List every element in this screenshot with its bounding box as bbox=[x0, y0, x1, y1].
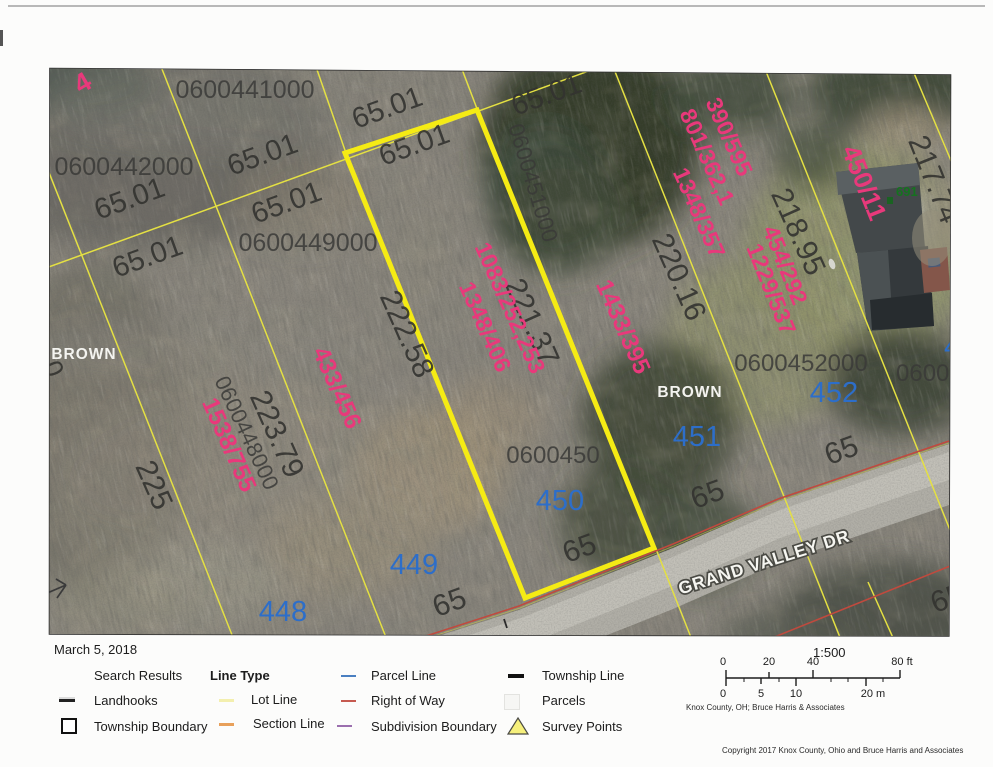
svg-text:0600452: 0600452 bbox=[896, 360, 989, 387]
svg-text:0600441000: 0600441000 bbox=[175, 76, 314, 104]
svg-text:0: 0 bbox=[720, 656, 726, 668]
svg-text:449: 449 bbox=[390, 549, 438, 581]
svg-text:451: 451 bbox=[673, 421, 721, 453]
svg-text:BROWN: BROWN bbox=[657, 384, 722, 401]
svg-text:40: 40 bbox=[807, 656, 819, 668]
svg-text:20 m: 20 m bbox=[861, 688, 885, 700]
svg-text:448: 448 bbox=[259, 596, 307, 628]
svg-text:45: 45 bbox=[944, 331, 976, 363]
svg-text:10: 10 bbox=[790, 688, 802, 700]
svg-text:BROWN: BROWN bbox=[51, 346, 116, 363]
svg-text:0600450: 0600450 bbox=[506, 442, 599, 469]
svg-text:0600449000: 0600449000 bbox=[238, 229, 377, 257]
svg-text:0: 0 bbox=[720, 688, 726, 700]
svg-text:5: 5 bbox=[758, 688, 764, 700]
svg-text:80 ft: 80 ft bbox=[891, 656, 912, 668]
svg-text:691: 691 bbox=[896, 184, 918, 199]
svg-text:450: 450 bbox=[536, 485, 584, 517]
svg-text:0600442000: 0600442000 bbox=[54, 153, 193, 181]
svg-text:452: 452 bbox=[810, 377, 858, 409]
svg-text:20: 20 bbox=[763, 656, 775, 668]
svg-text:0600452000: 0600452000 bbox=[734, 350, 867, 377]
